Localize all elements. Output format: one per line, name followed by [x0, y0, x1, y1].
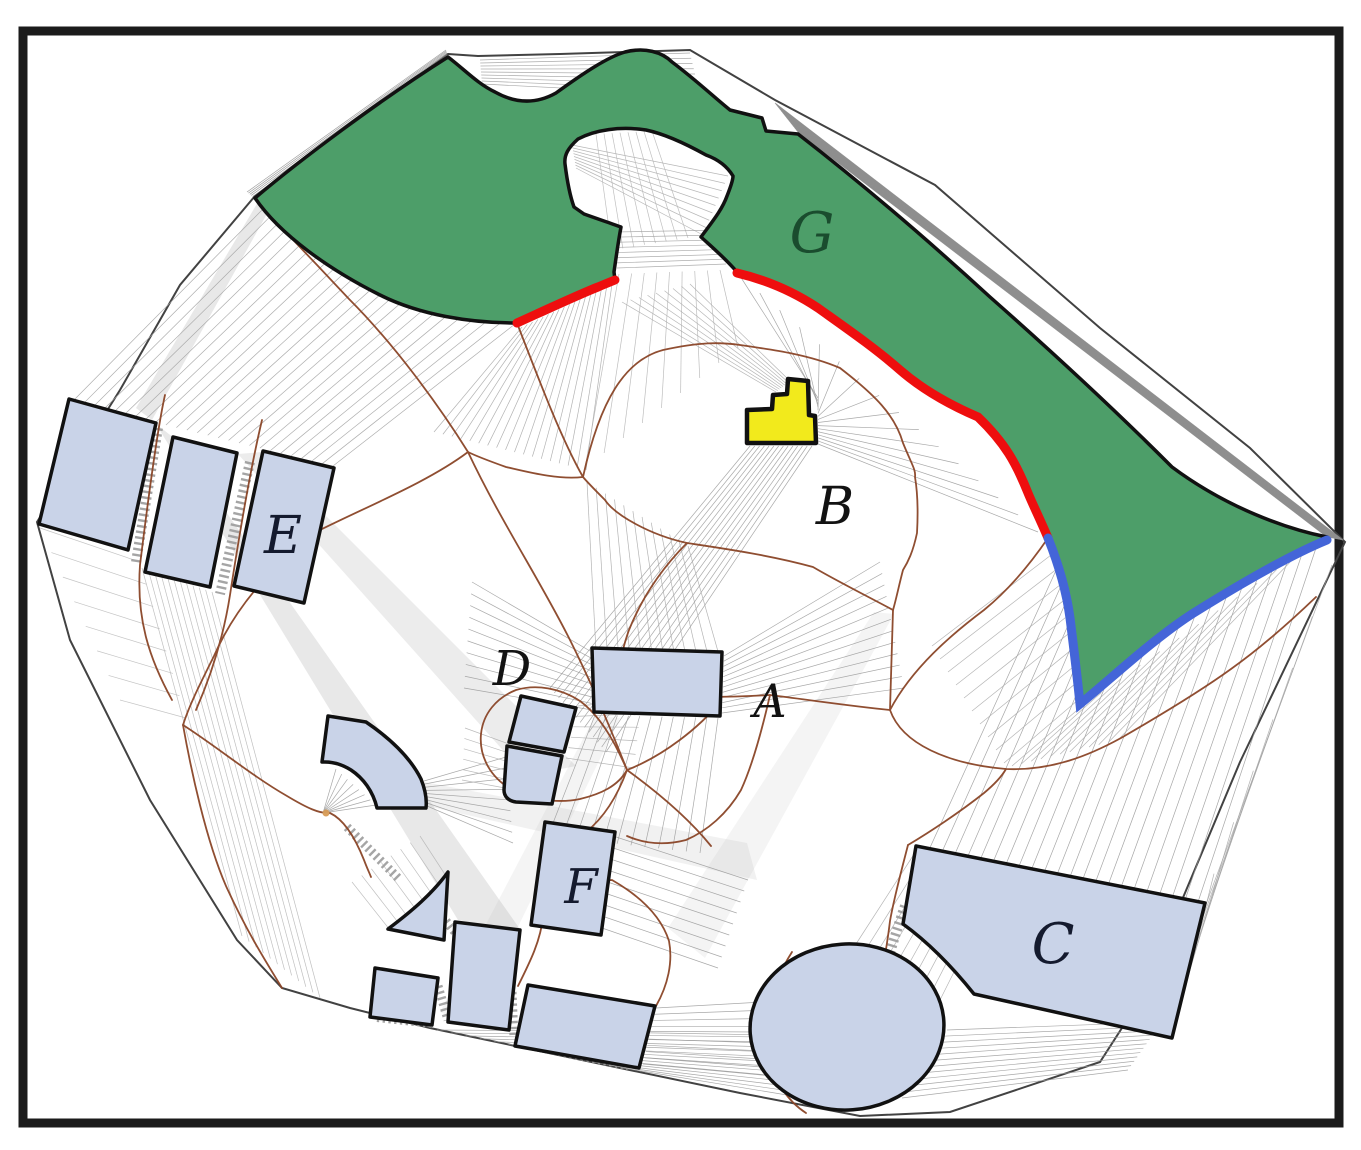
obstacle-elbow: [322, 716, 426, 808]
visibility-line: [818, 413, 899, 423]
visibility-line: [124, 233, 312, 415]
visibility-line: [239, 283, 424, 443]
visibility-line: [700, 718, 718, 853]
visibility-line: [656, 1002, 763, 1008]
visibility-line: [722, 665, 899, 703]
visibility-line: [97, 651, 173, 674]
obstacle-d-1: [509, 696, 576, 752]
visibility-line: [928, 566, 1058, 852]
visibility-line: [818, 432, 959, 464]
label-obstacle-b: B: [815, 477, 854, 537]
visibility-line: [323, 319, 505, 463]
corridor-hatch: [438, 986, 448, 1020]
visibility-line: [229, 278, 414, 440]
medial-axis-edge: [468, 452, 583, 478]
visibility-line: [199, 588, 306, 987]
visibility-line: [443, 324, 527, 434]
visibility-line: [161, 575, 263, 953]
visibility-line: [523, 302, 575, 455]
medial-axis-vertex-dot: [323, 810, 330, 817]
visibility-line: [948, 585, 1060, 672]
visibility-line: [74, 602, 159, 629]
obstacle-b-highlight: [747, 379, 816, 443]
visibility-line: [193, 585, 299, 981]
visibility-line: [424, 757, 506, 781]
visibility-line: [665, 291, 785, 385]
obstacle-rect-bottom-1: [370, 968, 438, 1025]
obstacle-a: [592, 648, 722, 716]
visibility-line: [681, 272, 683, 394]
label-region-g: G: [790, 201, 835, 266]
visibility-line: [906, 1066, 1131, 1092]
label-obstacle-d: D: [492, 641, 531, 697]
visibility-line: [617, 264, 726, 268]
visibility-line: [617, 259, 726, 263]
visibility-line: [103, 224, 292, 410]
visibility-line: [818, 435, 978, 481]
visibility-line: [371, 869, 406, 915]
visibility-line: [914, 1057, 1137, 1080]
visibility-line: [652, 131, 688, 238]
visibility-line: [818, 344, 819, 410]
visibility-line: [575, 162, 709, 220]
visibility-line: [653, 1018, 765, 1020]
visibility-line: [940, 568, 1058, 659]
visibility-line: [362, 875, 398, 922]
visibility-line: [270, 297, 454, 451]
visibility-line: [604, 274, 632, 454]
visibility-line: [114, 228, 303, 412]
visibility-line: [624, 505, 641, 652]
visibility-line: [120, 700, 186, 718]
visibility-line: [145, 242, 333, 420]
visibility-line: [939, 1031, 1156, 1043]
visibility-line: [980, 651, 1070, 724]
visibility-line: [662, 272, 670, 408]
visibility-line: [93, 219, 282, 407]
visibility-line: [644, 131, 677, 239]
visibility-line: [818, 361, 839, 413]
visibility-line: [586, 284, 612, 470]
medial-axis-edge: [183, 725, 282, 988]
visibility-line: [312, 315, 495, 461]
visibility-line: [996, 684, 1075, 750]
obstacle-circle: [744, 937, 949, 1116]
visibility-line: [922, 1048, 1143, 1067]
obstacle-rect-bottom-3: [515, 985, 655, 1068]
visibility-line: [972, 634, 1068, 711]
visibility-line: [568, 289, 601, 465]
visibility-line: [167, 577, 270, 959]
visibility-line: [434, 327, 522, 432]
visibility-line: [642, 273, 657, 424]
label-obstacle-a: A: [749, 674, 786, 728]
visibility-line: [470, 317, 543, 441]
visibility-line: [587, 482, 596, 651]
visibility-line: [616, 249, 725, 252]
visibility-line: [574, 154, 719, 199]
label-obstacle-e: E: [263, 506, 302, 566]
visibility-line: [932, 552, 1055, 646]
visibility-line: [707, 271, 719, 364]
visibility-line: [585, 274, 619, 468]
obstacle-d-2: [504, 746, 562, 804]
visibility-line: [86, 626, 167, 651]
wedge: [136, 202, 268, 420]
visibility-line: [249, 288, 434, 446]
visibility-line: [148, 570, 249, 941]
label-obstacle-c: C: [1032, 912, 1075, 977]
obstacle-sail: [388, 872, 448, 940]
visibility-line: [381, 862, 414, 907]
visibility-line: [176, 256, 363, 428]
obstacle-rect-bottom-2: [448, 922, 520, 1030]
visibility-line: [616, 254, 725, 257]
visibility-line: [690, 284, 790, 381]
visibility-line: [260, 292, 444, 448]
visibility-line: [291, 306, 474, 456]
visibility-line: [187, 583, 292, 975]
visibility-line: [596, 488, 607, 652]
medial-axis-edge: [890, 610, 893, 710]
visibility-line: [655, 1010, 764, 1014]
environment-map-svg: G B A C D E F: [0, 0, 1361, 1150]
visibility-line: [82, 215, 272, 405]
visibility-line: [208, 269, 394, 435]
visibility-line: [656, 293, 783, 387]
visibility-line: [323, 805, 376, 813]
obstacle-e-1: [39, 399, 156, 550]
visibility-line: [818, 426, 919, 430]
visibility-line: [174, 579, 278, 964]
visibility-line: [623, 273, 644, 438]
visibility-line: [1004, 700, 1078, 763]
visibility-line: [142, 568, 242, 936]
label-obstacle-f: F: [563, 859, 599, 915]
visibility-line: [631, 300, 778, 391]
visibility-line: [659, 717, 685, 848]
visibility-line: [506, 307, 565, 450]
visibility-line: [218, 274, 404, 438]
visibility-line: [918, 1053, 1140, 1074]
visibility-line: [180, 581, 284, 970]
figure-canvas: G B A C D E F: [0, 0, 1361, 1150]
visibility-line: [51, 553, 146, 585]
visibility-line: [352, 882, 390, 930]
visibility-line: [633, 511, 652, 653]
visibility-line: [575, 159, 713, 213]
visibility-line: [463, 770, 506, 780]
